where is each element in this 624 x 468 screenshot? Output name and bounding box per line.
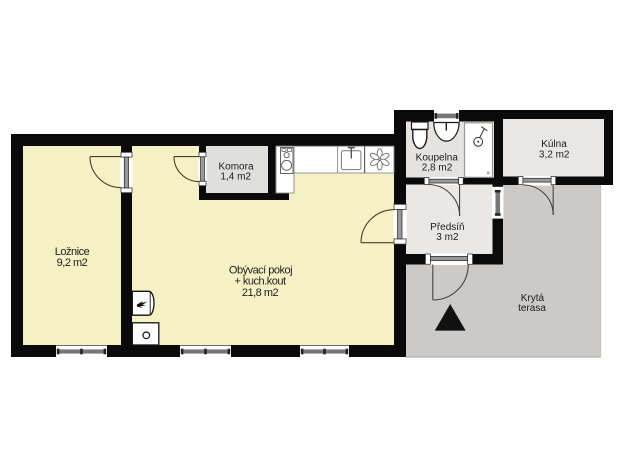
svg-text:2,8 m2: 2,8 m2 xyxy=(422,162,453,173)
svg-text:Obývací pokoj: Obývací pokoj xyxy=(229,264,292,276)
svg-text:+ kuch.kout: + kuch.kout xyxy=(234,276,286,288)
svg-text:9,2 m2: 9,2 m2 xyxy=(57,257,88,269)
svg-text:1,4 m2: 1,4 m2 xyxy=(220,172,251,183)
svg-text:21,8 m2: 21,8 m2 xyxy=(242,287,279,299)
svg-text:3,2 m2: 3,2 m2 xyxy=(539,149,570,160)
svg-text:3 m2: 3 m2 xyxy=(436,232,459,243)
svg-text:terasa: terasa xyxy=(518,303,546,314)
